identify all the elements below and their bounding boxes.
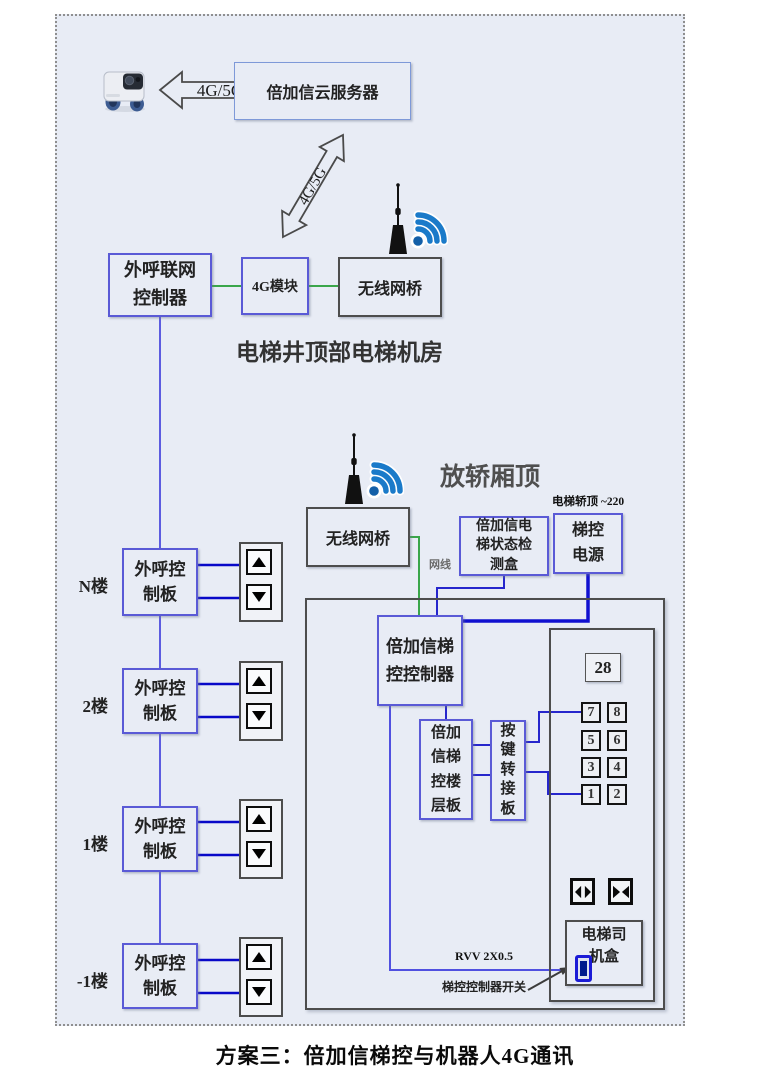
cloud-server-box: 倍加信云服务器 bbox=[234, 62, 411, 120]
call-board-label: 外呼控 制板 bbox=[135, 951, 186, 1002]
car-button-7: 7 bbox=[581, 702, 601, 723]
call-board-label: 外呼控 制板 bbox=[135, 676, 186, 727]
up-arrow-icon bbox=[252, 952, 266, 962]
floor-display-value: 28 bbox=[595, 658, 612, 678]
door-close-button bbox=[608, 878, 633, 905]
module-4g-box: 4G模块 bbox=[241, 257, 309, 315]
floor-label-n: N楼 bbox=[56, 572, 108, 597]
down-arrow-icon bbox=[252, 711, 266, 721]
hall-down-button bbox=[246, 841, 272, 867]
antenna-wifi-icon bbox=[334, 431, 404, 509]
machine-room-label: 电梯井顶部电梯机房 bbox=[236, 333, 443, 367]
call-board-box: 外呼控 制板 bbox=[122, 943, 198, 1009]
up-arrow-icon bbox=[252, 557, 266, 567]
up-arrow-icon bbox=[252, 814, 266, 824]
call-board-label: 外呼控 制板 bbox=[135, 814, 186, 865]
floor-label-1: 1楼 bbox=[56, 830, 108, 855]
ethernet-cable-label: 网线 bbox=[429, 556, 451, 572]
down-arrow-icon bbox=[252, 592, 266, 602]
call-board-box: 外呼控 制板 bbox=[122, 806, 198, 872]
module-4g-label: 4G模块 bbox=[252, 276, 298, 296]
call-board-box: 外呼控 制板 bbox=[122, 548, 198, 616]
car-top-label: 放轿厢顶 bbox=[440, 457, 540, 493]
car-button-4: 4 bbox=[607, 757, 627, 778]
car-button-6: 6 bbox=[607, 730, 627, 751]
car-button-2: 2 bbox=[607, 784, 627, 805]
hall-down-button bbox=[246, 979, 272, 1005]
cloud-server-label: 倍加信云服务器 bbox=[266, 79, 378, 103]
hall-button-panel bbox=[239, 799, 283, 879]
elevator-power-label: 梯控 电源 bbox=[572, 519, 604, 569]
down-arrow-icon bbox=[252, 987, 266, 997]
switch-label: 梯控控制器开关 bbox=[442, 978, 526, 995]
hall-down-button bbox=[246, 703, 272, 729]
up-arrow-icon bbox=[252, 676, 266, 686]
floor-board-label: 倍加 信梯 控楼 层板 bbox=[431, 721, 461, 818]
elevator-power-box: 梯控 电源 bbox=[553, 513, 623, 574]
down-arrow-icon bbox=[252, 849, 266, 859]
floor-board-box: 倍加 信梯 控楼 层板 bbox=[419, 719, 473, 820]
hall-up-button bbox=[246, 944, 272, 970]
floor-display: 28 bbox=[585, 653, 621, 682]
hall-down-button bbox=[246, 584, 272, 610]
antenna-wifi-icon bbox=[378, 181, 448, 259]
caller-gateway-label: 外呼联网 控制器 bbox=[124, 257, 196, 313]
delivery-robot-icon bbox=[98, 64, 152, 112]
hall-button-panel bbox=[239, 542, 283, 622]
switch-toggle bbox=[580, 961, 587, 976]
diagonal-arrow-4g5g: 4G/5G bbox=[270, 125, 360, 250]
car-controller-box: 倍加信梯 控控制器 bbox=[377, 615, 463, 706]
diagram-caption: 方案三：倍加信梯控与机器人4G通讯 bbox=[60, 1040, 730, 1070]
door-close-icon bbox=[612, 884, 630, 900]
key-adapter-label: 按 键 转 接 板 bbox=[500, 722, 515, 820]
status-detect-box: 倍加信电 梯状态检 测盒 bbox=[459, 516, 549, 576]
car-button-3: 3 bbox=[581, 757, 601, 778]
car-button-8: 8 bbox=[607, 702, 627, 723]
hall-button-panel bbox=[239, 937, 283, 1017]
car-top-power-note: 电梯轿顶 ~220 bbox=[552, 493, 624, 509]
door-open-icon bbox=[574, 884, 592, 900]
wireless-bridge-machine-room-box: 无线网桥 bbox=[338, 257, 442, 317]
scheme-diagram-page: 4G/5G 倍加信云服务器 4G/5G 外呼联网 控制器 4G模块 无线网桥 bbox=[0, 0, 768, 1090]
call-board-box: 外呼控 制板 bbox=[122, 668, 198, 734]
hall-up-button bbox=[246, 549, 272, 575]
diagonal-arrow-label: 4G/5G bbox=[296, 165, 330, 209]
door-open-button bbox=[570, 878, 595, 905]
wireless-bridge-label: 无线网桥 bbox=[326, 525, 390, 549]
hall-button-panel bbox=[239, 661, 283, 741]
caller-gateway-box: 外呼联网 控制器 bbox=[108, 253, 212, 317]
key-adapter-box: 按 键 转 接 板 bbox=[490, 720, 526, 821]
car-button-1: 1 bbox=[581, 784, 601, 805]
floor-label-2: 2楼 bbox=[56, 692, 108, 717]
rvv-cable-label: RVV 2X0.5 bbox=[455, 949, 513, 964]
wireless-bridge-label: 无线网桥 bbox=[358, 275, 422, 299]
call-board-label: 外呼控 制板 bbox=[135, 557, 186, 608]
status-detect-label: 倍加信电 梯状态检 测盒 bbox=[476, 517, 532, 576]
floor-label-neg1: -1楼 bbox=[56, 967, 108, 992]
hall-up-button bbox=[246, 806, 272, 832]
controller-switch bbox=[575, 955, 592, 982]
wireless-bridge-car-top-box: 无线网桥 bbox=[306, 507, 410, 567]
car-button-5: 5 bbox=[581, 730, 601, 751]
hall-up-button bbox=[246, 668, 272, 694]
car-controller-label: 倍加信梯 控控制器 bbox=[386, 633, 454, 687]
